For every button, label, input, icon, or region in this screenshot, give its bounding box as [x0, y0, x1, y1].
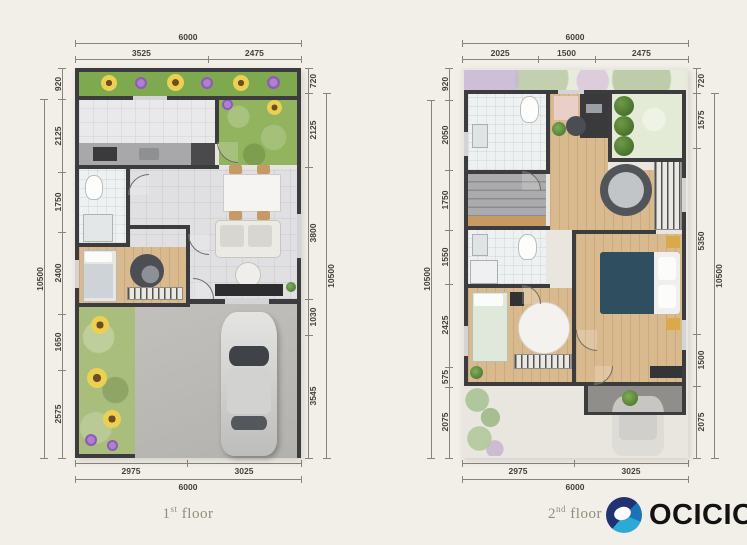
dim-label: 3025 [235, 466, 254, 476]
stair-rail [468, 216, 546, 226]
plant [552, 122, 566, 136]
second-floor-plan [462, 68, 688, 458]
dim-tick [323, 458, 331, 459]
dim-label: 720 [696, 73, 706, 87]
dim-tick [688, 40, 689, 47]
dim-tick [40, 99, 48, 100]
master-bed [600, 252, 680, 314]
tv-console [215, 284, 283, 296]
dim-tick [711, 93, 719, 94]
dim-tick [711, 458, 719, 459]
shower [83, 214, 113, 242]
bed-pillow [658, 257, 676, 280]
hedge-bush [614, 116, 634, 136]
purple-flower [85, 434, 97, 446]
dim-tick [305, 68, 313, 69]
wall [572, 230, 656, 234]
dim-label: 6000 [179, 32, 198, 42]
dim-label: 1500 [696, 350, 706, 369]
dim-tick [58, 370, 66, 371]
dims-f2-right-segments: 7201575535015002075 [693, 68, 709, 458]
dim-tick [693, 386, 701, 387]
dims-f2-left-total: 10500 [419, 68, 435, 458]
dim-line [462, 43, 688, 44]
dim-label: 5350 [696, 231, 706, 250]
dim-label: 2125 [308, 120, 318, 139]
dim-label: 6000 [566, 32, 585, 42]
dim-label: 10500 [35, 267, 45, 291]
dim-label: 1750 [53, 192, 63, 211]
floor-word: floor [182, 506, 214, 522]
dim-tick [58, 99, 66, 100]
dim-tick [305, 167, 313, 168]
dim-tick [693, 148, 701, 149]
sofa-cushion [220, 225, 244, 247]
dim-tick [305, 335, 313, 336]
shelf [127, 287, 183, 300]
dim-tick [693, 93, 701, 94]
dim-tick [305, 458, 313, 459]
dim-tick [445, 284, 453, 285]
dims-f1-right-segments: 7202125380010303545 [305, 68, 321, 458]
dim-tick [538, 56, 539, 63]
dims-f1-right-total: 10500 [323, 68, 339, 458]
dim-label: 2975 [122, 466, 141, 476]
floor-number: 1 [163, 506, 171, 522]
sink [472, 124, 488, 148]
dim-tick [75, 56, 76, 63]
sofa-cushion [248, 225, 272, 247]
dim-tick [427, 458, 435, 459]
bookshelf [514, 354, 572, 369]
dim-tick [445, 100, 453, 101]
dim-label: 1750 [440, 191, 450, 210]
toilet [85, 175, 103, 200]
dim-label: 10500 [326, 264, 336, 288]
dim-tick [301, 40, 302, 47]
ocicio-logo-text: OCICIO [649, 499, 747, 532]
window [225, 299, 269, 304]
dim-tick [208, 56, 209, 63]
bed-pillow [85, 252, 112, 262]
dim-tick [445, 230, 453, 231]
dim-tick [688, 56, 689, 63]
dim-tick [462, 476, 463, 483]
wall [75, 165, 219, 169]
window [133, 96, 167, 100]
dims-f2-top-segments: 202515002475 [462, 46, 688, 62]
dim-tick [58, 172, 66, 173]
dim-tick [40, 458, 48, 459]
dining-chair [229, 165, 242, 174]
dim-tick [574, 460, 575, 467]
wall [75, 454, 135, 458]
dim-label: 2975 [509, 466, 528, 476]
dim-label: 920 [53, 77, 63, 91]
floorplan-sheet: 6000 35252475 29753025 6000 10500 920212… [0, 0, 747, 545]
car [221, 312, 277, 456]
first-floor-plan [75, 68, 301, 458]
dim-tick [75, 476, 76, 483]
dim-line [75, 59, 301, 60]
dim-tick [301, 56, 302, 63]
dim-line [75, 43, 301, 44]
dim-label: 2125 [53, 126, 63, 145]
dim-tick [445, 387, 453, 388]
wall [608, 94, 612, 162]
wall [75, 303, 190, 307]
dim-label: 2075 [440, 413, 450, 432]
balcony-railing [588, 412, 682, 415]
wardrobe [654, 158, 682, 230]
dim-tick [305, 93, 313, 94]
kitchen-sink [139, 148, 159, 160]
dim-tick [58, 232, 66, 233]
dining-table [223, 174, 281, 212]
purple-flower [135, 77, 147, 89]
dim-label: 2425 [440, 316, 450, 335]
ocicio-logo: OCICIO [606, 497, 747, 533]
bed-blanket [84, 264, 113, 298]
sunflower [267, 100, 282, 115]
papasan-cushion [608, 172, 644, 208]
dim-label: 2475 [632, 48, 651, 58]
window [682, 178, 686, 212]
dims-f1-left-segments: 92021251750240016502575 [50, 68, 66, 458]
balcony-plant [622, 390, 638, 406]
dim-label: 2050 [440, 125, 450, 144]
plant [470, 366, 483, 379]
floor-ordinal: st [171, 504, 178, 514]
dim-tick [462, 56, 463, 63]
sunflower [167, 74, 184, 91]
dims-f2-bottom-total: 6000 [462, 478, 688, 494]
dim-label: 3525 [132, 48, 151, 58]
bed-pillow [658, 285, 676, 308]
dim-label: 720 [308, 73, 318, 87]
dims-f1-top-segments: 35252475 [75, 46, 301, 62]
dim-tick [301, 476, 302, 483]
floor-ordinal: nd [556, 504, 566, 514]
dim-label: 6000 [179, 482, 198, 492]
hedge-bush [614, 96, 634, 116]
dim-label: 1650 [53, 332, 63, 351]
dim-label: 3800 [308, 223, 318, 242]
desk-chair [566, 116, 586, 136]
sunflower [87, 368, 107, 388]
dim-tick [445, 367, 453, 368]
dims-f2-left-segments: 92020501750155024255752075 [437, 68, 453, 458]
toilet [520, 96, 539, 123]
wall [584, 386, 588, 415]
hedge-bush [614, 136, 634, 156]
dim-tick [462, 460, 463, 467]
dims-f1-bottom-total: 6000 [75, 478, 301, 494]
dim-tick [693, 458, 701, 459]
dim-tick [445, 68, 453, 69]
dim-tick [187, 460, 188, 467]
wall [215, 100, 219, 144]
wall [126, 169, 130, 247]
sunflower [101, 75, 117, 91]
window [297, 214, 301, 258]
dim-label: 3025 [622, 466, 641, 476]
dim-tick [688, 460, 689, 467]
wall [572, 230, 576, 382]
dim-label: 10500 [714, 264, 724, 288]
first-floor-label: 1st floor [75, 504, 301, 523]
dim-label: 575 [440, 370, 450, 384]
car-rear-window [231, 416, 267, 430]
bathtub [470, 260, 498, 284]
car-windshield [229, 346, 269, 366]
dim-label: 1500 [557, 48, 576, 58]
sunflower [103, 410, 121, 428]
sunflower [233, 75, 249, 91]
wall [546, 94, 550, 174]
dim-line [75, 479, 301, 480]
car-roof [227, 368, 271, 414]
window [464, 132, 468, 156]
fridge [191, 143, 215, 165]
bed-pillow [474, 294, 503, 306]
planter-strip [464, 70, 686, 90]
floor-word: floor [570, 506, 602, 522]
dim-tick [323, 93, 331, 94]
car-below [612, 396, 664, 456]
dim-label: 2025 [491, 48, 510, 58]
dim-label: 2075 [696, 412, 706, 431]
dim-tick [427, 100, 435, 101]
dims-f2-bottom-segments: 29753025 [462, 462, 688, 478]
window [682, 320, 686, 350]
purple-flower [222, 99, 233, 110]
dim-label: 10500 [422, 267, 432, 291]
dim-tick [75, 460, 76, 467]
nightstand [666, 236, 680, 248]
dining-chair [257, 211, 270, 220]
wall [75, 68, 301, 72]
dims-f2-top-total: 6000 [462, 30, 688, 46]
plant [286, 282, 296, 292]
wall [464, 284, 550, 288]
dims-f2-right-total: 10500 [711, 68, 727, 458]
dining-chair [257, 165, 270, 174]
dim-label: 2475 [245, 48, 264, 58]
lounge-chair [130, 254, 164, 288]
ocicio-ring-icon [606, 497, 642, 533]
wall [464, 170, 550, 174]
dims-f1-left-total: 10500 [32, 68, 48, 458]
sunflower [91, 316, 109, 334]
round-rug [518, 302, 570, 354]
dim-line [462, 59, 688, 60]
purple-flower [201, 77, 213, 89]
dim-label: 1030 [308, 307, 318, 326]
dim-label: 920 [440, 77, 450, 91]
dim-label: 1575 [696, 111, 706, 130]
dim-tick [445, 458, 453, 459]
wall [130, 225, 190, 229]
purple-flower [107, 440, 118, 451]
wall [464, 382, 686, 386]
purple-flower [267, 76, 280, 89]
dim-tick [693, 334, 701, 335]
dresser [650, 366, 682, 378]
dim-label: 1550 [440, 247, 450, 266]
window [464, 326, 468, 356]
stove [93, 147, 117, 161]
wall [75, 243, 130, 247]
dim-tick [693, 68, 701, 69]
dim-label: 2575 [53, 405, 63, 424]
car-roof [619, 412, 657, 440]
monitor [586, 104, 602, 113]
sink [472, 234, 488, 256]
dims-f1-bottom-segments: 29753025 [75, 462, 301, 478]
dim-line [462, 479, 688, 480]
floor-number: 2 [548, 506, 556, 522]
dim-tick [445, 170, 453, 171]
dim-tick [58, 68, 66, 69]
dim-label: 3545 [308, 387, 318, 406]
dim-tick [595, 56, 596, 63]
dims-f1-top-total: 6000 [75, 30, 301, 46]
toilet [518, 234, 537, 260]
dim-tick [301, 460, 302, 467]
wall [464, 226, 550, 230]
dim-tick [58, 314, 66, 315]
dim-label: 6000 [566, 482, 585, 492]
dining-chair [229, 211, 242, 220]
garden-below [464, 386, 508, 456]
dim-tick [305, 299, 313, 300]
window [558, 90, 584, 94]
wall [608, 158, 686, 162]
dim-label: 2400 [53, 263, 63, 282]
dim-tick [688, 476, 689, 483]
wall [297, 68, 301, 458]
dim-tick [58, 458, 66, 459]
window [75, 260, 79, 288]
wall [75, 96, 301, 100]
nightstand [666, 318, 680, 330]
wall [682, 386, 686, 415]
